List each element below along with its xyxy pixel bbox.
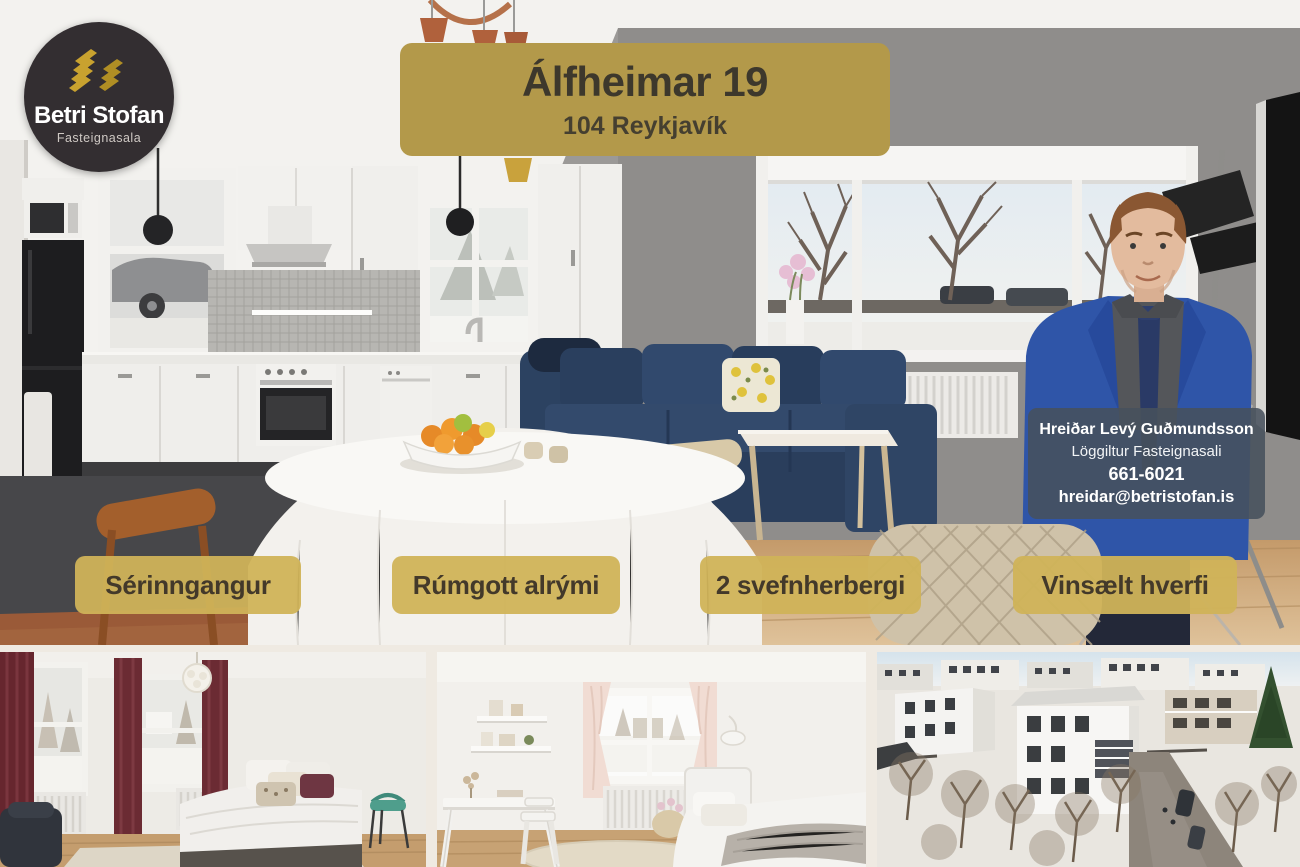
listing-title-badge: Álfheimar 19 104 Reykjavík: [400, 43, 890, 156]
feature-badge-popular-area: Vinsælt hverfi: [1013, 556, 1237, 614]
real-estate-flyer: Betri Stofan Fasteignasala Álfheimar 19 …: [0, 0, 1300, 867]
agent-info-card: Hreiðar Levý Guðmundsson Löggiltur Faste…: [1028, 408, 1265, 519]
photo-bedroom-second: [437, 652, 866, 867]
feature-badge-bedrooms: 2 svefnherbergi: [700, 556, 921, 614]
agent-phone: 661-6021: [1108, 464, 1184, 485]
agency-name: Betri Stofan: [34, 102, 164, 130]
feature-badge-spacious-area: Rúmgott alrými: [392, 556, 620, 614]
logo-buildings-icon: [61, 49, 137, 98]
agent-role: Löggiltur Fasteignasali: [1071, 443, 1221, 460]
listing-address: Álfheimar 19: [522, 58, 768, 106]
agency-subtitle: Fasteignasala: [57, 131, 141, 145]
agent-name: Hreiðar Levý Guðmundsson: [1039, 421, 1253, 439]
photo-bedroom-master: [0, 652, 426, 867]
agent-email: hreidar@betristofan.is: [1059, 488, 1235, 507]
feature-badge-private-entrance: Sérinngangur: [75, 556, 301, 614]
listing-location: 104 Reykjavík: [563, 112, 727, 141]
agency-logo: Betri Stofan Fasteignasala: [24, 22, 174, 172]
photo-aerial-neighbourhood: [877, 652, 1300, 867]
